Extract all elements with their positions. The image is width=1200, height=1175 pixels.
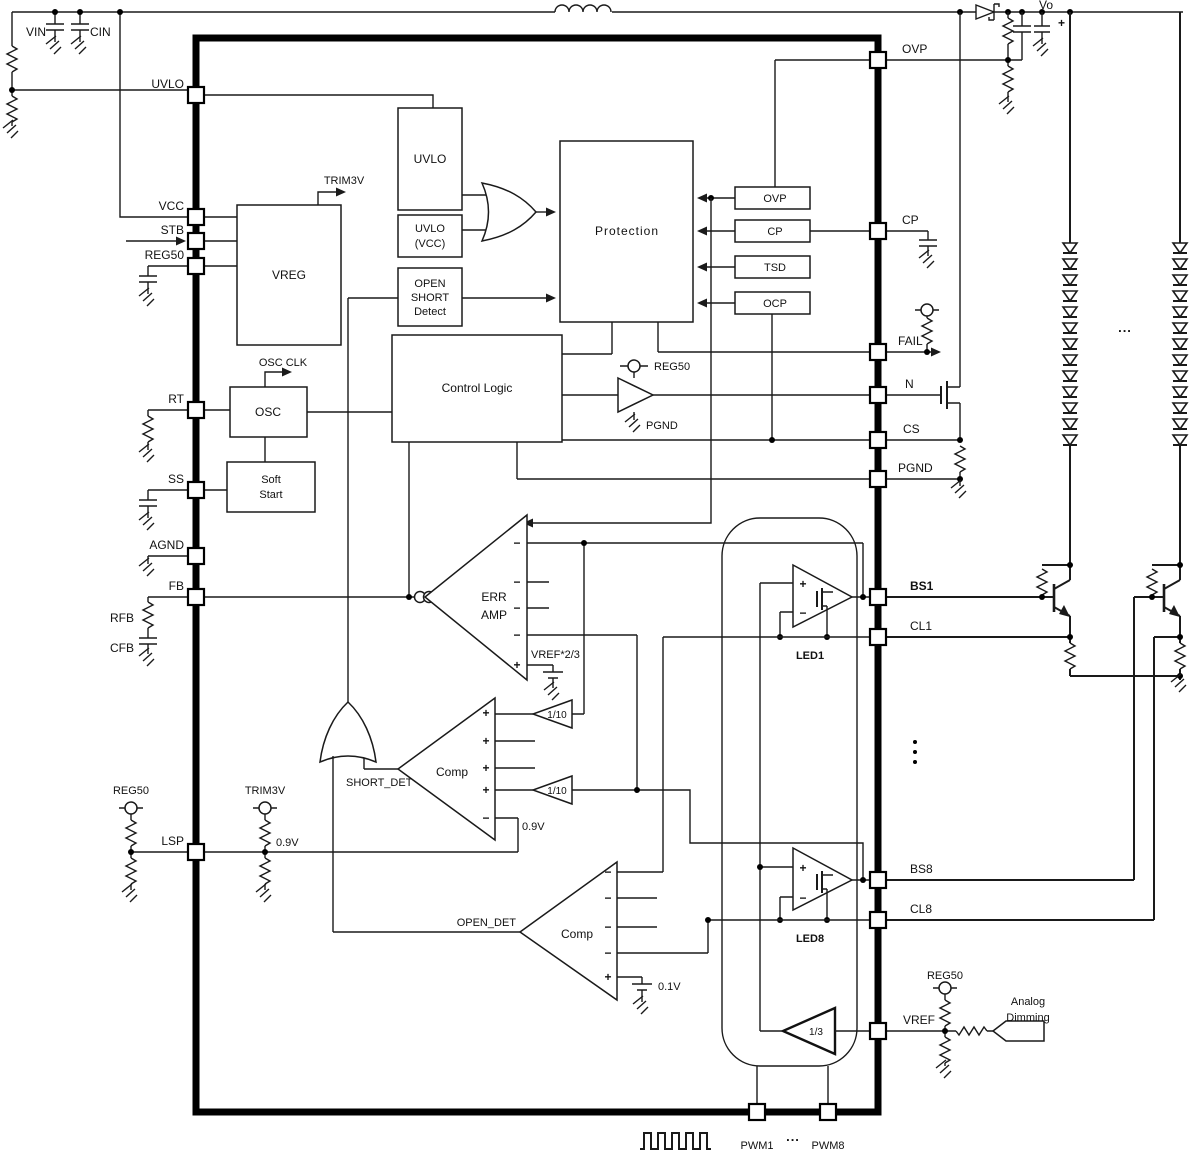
fail-pullup [886,304,941,357]
scomp-in3-plus: + [482,761,489,775]
ocomp-in1-minus: − [604,865,611,879]
vref23-label: VREF*2/3 [531,649,580,661]
pin-cl1 [870,629,886,645]
uvlo-pin-label: UVLO [151,77,184,91]
pin-pgnd [870,471,886,487]
internal-circuit: VREG TRIM3V UVLO UVLO (VCC) OPEN SHORT D… [204,60,917,1104]
schottky-diode [976,4,999,20]
scomp-in5-minus: − [482,811,489,825]
osc-label: OSC [255,405,281,419]
uvlo-vcc-label-1: UVLO [415,223,445,235]
pin-ovp [870,52,886,68]
dimming-label: Dimming [1006,1012,1049,1024]
pin-pwm8 [820,1104,836,1120]
osd-label-3: Detect [414,306,446,318]
lsp-pin-label: LSP [161,834,184,848]
ocomp-in2-minus: − [604,891,611,905]
gain-third-label: 1/3 [809,1027,823,1038]
rfb-resistor [143,602,153,628]
cp-flag-label: CP [767,226,782,238]
pin-agnd [188,548,204,564]
pin-fail [870,344,886,360]
pin-cp [870,223,886,239]
pwm1-pin-label: PWM1 [741,1140,774,1152]
lsp-trim3v-divider: TRIM3V 0.9V [245,785,299,902]
pin-fb [188,589,204,605]
lsp-v09-label: 0.9V [276,837,299,849]
ovp-pin-label: OVP [902,42,927,56]
n-pin-label: N [905,377,914,391]
pin-cl8 [870,912,886,928]
ovp-bottom-resistor [1003,66,1013,92]
erramp-in4-minus: − [513,628,520,642]
gate-driver: REG50 PGND [562,360,870,432]
fb-pin-label: FB [169,579,184,593]
lsp-trim3v-label: TRIM3V [245,785,286,797]
tsd-flag-label: TSD [764,262,786,274]
driver-reg50-label: REG50 [654,361,690,373]
led8-amplifier: + − LED8 [760,848,870,945]
short-det-or-gate [320,702,376,762]
pin-n [870,387,886,403]
trim3v-arrow [336,188,346,197]
vref-pin-label: VREF [903,1013,935,1027]
pin-stb [188,233,204,249]
ovp-top-resistor [1003,18,1013,44]
pwm8-pin-label: PWM8 [812,1140,845,1152]
stb-arrow [176,237,186,246]
led-string-1 [1063,243,1077,445]
left-externals: RFB CFB REG50 [110,237,188,903]
pgnd-pin-label: PGND [898,461,933,475]
ocomp-in4-minus: − [604,946,611,960]
v01-label: 0.1V [658,981,681,993]
analog-dimming-tag [993,1021,1044,1041]
ovp-flag-label: OVP [763,193,786,205]
pin-cs [870,432,886,448]
driver-pgnd-label: PGND [646,420,678,432]
soft-start-block [227,462,315,512]
pin-bs8 [870,872,886,888]
output-capacitor: + [1033,12,1065,56]
erramp-in5-plus: + [513,658,520,672]
reg50-capacitor [139,276,157,282]
vcc-feed-wire [120,12,188,217]
short-comp-ref-label: 0.9V [522,821,545,833]
vref23-reference: VREF*2/3 [531,649,580,700]
cl8-pin-label: CL8 [910,902,932,916]
led1-amplifier: + − LED1 [760,565,870,662]
trim3v-label: TRIM3V [324,175,365,187]
ovp-snubber-cap [1013,26,1031,32]
rt-pin-label: RT [168,392,184,406]
err-amp-label-2: AMP [481,608,507,622]
pin-pwm1 [749,1104,765,1120]
pin-uvlo [188,87,204,103]
gain-tenth-2-label: 1/10 [547,786,567,797]
cfb-label: CFB [110,641,134,655]
led-strings-ellipsis: ... [1118,320,1132,335]
pin-reg50 [188,258,204,274]
agnd-pin-label: AGND [149,538,184,552]
dimming-resistor [956,1027,987,1035]
fail-arrow [931,348,941,357]
erramp-in1-minus: − [513,536,520,550]
pwm-ellipsis: ... [786,1129,800,1144]
led-driver-block-diagram: VIN CIN + Vo ... [0,0,1200,1175]
schematic-canvas: VIN CIN + Vo ... [0,0,1200,1175]
open-comp-label: Comp [561,927,593,941]
led-strings: ... [1063,12,1187,565]
osd-label-1: OPEN [414,278,445,290]
pin-vref [870,1023,886,1039]
pin-rt [188,402,204,418]
pwm-inputs: ... [640,1129,800,1149]
cin-label: CIN [90,25,111,39]
led1-minus: − [799,606,806,620]
control-logic-label: Control Logic [442,381,513,395]
pwm-waveform [640,1133,711,1149]
ss-capacitor [139,500,157,506]
short-det-label: SHORT_DET [346,777,413,789]
uvlo-divider-bottom-resistor [7,96,17,122]
external-mosfet [886,12,960,440]
vo-label: Vo [1039,0,1053,12]
ocp-flag-label: OCP [763,298,787,310]
led8-label: LED8 [796,933,824,945]
vin-label: VIN [26,25,46,39]
channel-ellipsis [913,740,917,764]
v01-reference: 0.1V [632,977,681,1014]
inductor [555,5,611,12]
protection-label: Protection [595,224,659,238]
bs1-pin-label: BS1 [910,579,934,593]
ocomp-in3-minus: − [604,920,611,934]
bs8-pin-label: BS8 [910,862,933,876]
rfb-label: RFB [110,611,134,625]
led8-minus: − [799,891,806,905]
scomp-in2-plus: + [482,734,489,748]
erramp-in3-minus: − [513,601,520,615]
cs-pin-label: CS [903,422,920,436]
pin-vcc [188,209,204,225]
err-amp-triangle [425,515,527,680]
driver-triangle [618,378,653,412]
short-comp-label: Comp [436,765,468,779]
fail-pin-label: FAIL [898,334,923,348]
uvlo-vcc-label-2: (VCC) [415,238,446,250]
led8-plus: + [799,861,806,875]
rt-resistor [143,416,153,442]
cin-capacitor [71,24,89,30]
lsp-reg50-label: REG50 [113,785,149,797]
right-externals: REG50 Analog Dimming [886,12,1050,1078]
vref-reg50-label: REG50 [927,970,963,982]
led-string-8 [1173,243,1187,445]
gain-tenth-1-label: 1/10 [547,710,567,721]
cfb-capacitor [139,638,157,644]
pin-bs1 [870,589,886,605]
agnd-ground [139,558,154,576]
cl1-pin-label: CL1 [910,619,932,633]
soft-start-label-2: Start [259,489,282,501]
uvlo-vcc-block [398,215,462,257]
reg50-pin-label: REG50 [145,248,185,262]
ss-pin-label: SS [168,472,184,486]
vreg-label: VREG [272,268,306,282]
erramp-in2-minus: − [513,575,520,589]
vcc-pin-label: VCC [159,199,185,213]
cp-pin-label: CP [902,213,919,227]
uvlo-divider-top-resistor [7,46,17,72]
uvlo-block-label: UVLO [414,152,447,166]
led1-plus: + [799,577,806,591]
uvlo-or-gate [482,183,536,241]
led1-label: LED1 [796,650,824,662]
soft-start-label-1: Soft [261,474,281,486]
pin-lsp [188,844,204,860]
analog-label: Analog [1011,996,1045,1008]
stb-pin-label: STB [161,223,184,237]
cp-capacitor [919,240,937,246]
osc-clk-label: OSC CLK [259,357,308,369]
ocomp-in5-plus: + [604,970,611,984]
scomp-in1-plus: + [482,706,489,720]
err-amp-label-1: ERR [481,590,507,604]
pin-ss [188,482,204,498]
open-det-label: OPEN_DET [457,917,517,929]
scomp-in4-plus: + [482,783,489,797]
polarity-plus: + [1058,16,1065,30]
vin-capacitor [46,24,64,30]
osd-label-2: SHORT [411,292,450,304]
cs-sense-resistor [955,446,965,472]
